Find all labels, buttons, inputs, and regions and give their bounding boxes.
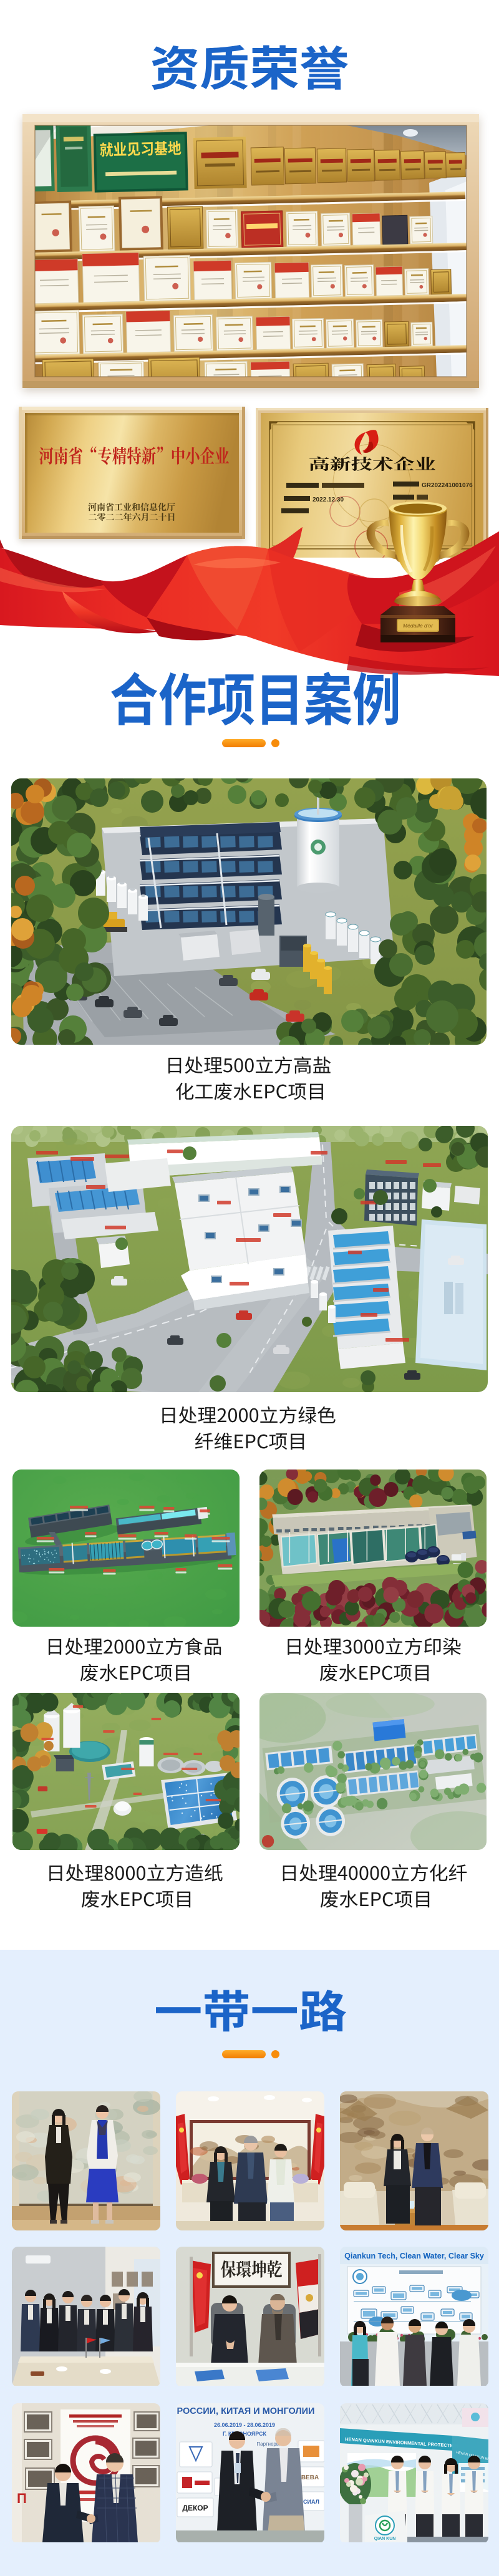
svg-text:РОССИИ, КИТАЯ И МОНГОЛИИ: РОССИИ, КИТАЯ И МОНГОЛИИ xyxy=(177,2406,315,2416)
svg-text:Г. КРАСНОЯРСК: Г. КРАСНОЯРСК xyxy=(223,2431,267,2437)
svg-text:BEBA: BEBA xyxy=(301,2474,319,2481)
svg-text:Qiankun Tech, Clean Water, Cle: Qiankun Tech, Clean Water, Clear Sky xyxy=(344,2252,484,2260)
svg-text:Médaille d'or: Médaille d'or xyxy=(403,622,434,629)
svg-text:СИАЛ: СИАЛ xyxy=(303,2499,319,2505)
svg-text:QIAN KUN: QIAN KUN xyxy=(374,2537,396,2541)
svg-text:ДЕКОР: ДЕКОР xyxy=(182,2504,208,2512)
svg-text:26.06.2019 - 28.06.2019: 26.06.2019 - 28.06.2019 xyxy=(214,2422,275,2428)
svg-text:П: П xyxy=(17,2491,27,2506)
